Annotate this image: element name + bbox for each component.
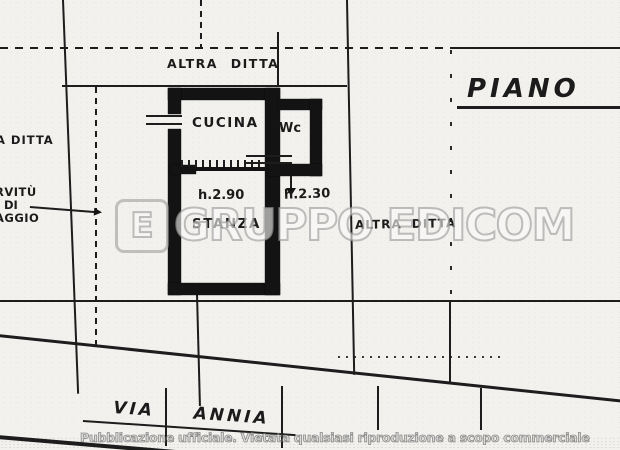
floor-title-underline bbox=[457, 106, 620, 109]
parcel-top-line bbox=[62, 85, 347, 87]
room-label-wc: Wc bbox=[279, 121, 301, 136]
easement-label-line2: DI bbox=[4, 198, 18, 212]
floor-title: PIANO T bbox=[467, 74, 620, 104]
window-mark-1 bbox=[146, 115, 182, 117]
boundary-top-right-segment bbox=[452, 47, 620, 49]
vertical-street-3 bbox=[377, 386, 379, 430]
room-label-kitchen: CUCINA bbox=[192, 115, 259, 131]
dashed-vertical-right bbox=[450, 50, 452, 302]
watermark-logo-letter: E bbox=[130, 209, 153, 243]
vertical-street-4 bbox=[480, 388, 482, 430]
easement-arrow-shaft bbox=[30, 206, 96, 213]
wall-center bbox=[265, 88, 280, 295]
road-top-edge-line bbox=[0, 334, 620, 403]
door-mark-1 bbox=[246, 155, 292, 157]
dotted-line-road-area bbox=[338, 356, 503, 358]
vertical-right-lower bbox=[449, 302, 451, 384]
cadastral-plan-scan: ALTRA DITTA PIANO T A DITTA RVITÙ DI AGG… bbox=[0, 0, 620, 450]
dashed-vertical-easement bbox=[95, 87, 97, 345]
partition-line bbox=[181, 167, 265, 171]
boundary-label-top: ALTRA DITTA bbox=[167, 56, 279, 71]
easement-label-line3: AGGIO bbox=[0, 211, 39, 225]
easement-label-line1: RVITÙ bbox=[0, 185, 37, 199]
boundary-label-left: A DITTA bbox=[0, 133, 54, 147]
section-line-lower bbox=[0, 300, 620, 302]
footer-notice: Pubblicazione ufficiale. Vietata qualsia… bbox=[80, 430, 590, 445]
parcel-left-line bbox=[62, 0, 79, 394]
dashed-vertical-top bbox=[200, 0, 202, 48]
dashed-boundary-top bbox=[0, 47, 452, 49]
door-mark-2 bbox=[246, 162, 292, 164]
wall-top bbox=[168, 88, 280, 100]
watermark-text: GRUPPO EDICOM bbox=[174, 200, 574, 251]
wall-left-upper bbox=[168, 88, 181, 114]
wall-wc-bottom bbox=[268, 164, 322, 176]
watermark-logo: E bbox=[115, 199, 169, 253]
easement-arrow-icon bbox=[94, 208, 103, 217]
vertical-below-building bbox=[196, 294, 201, 406]
window-mark-2 bbox=[146, 123, 182, 125]
parcel-right-line bbox=[346, 0, 355, 375]
wall-bottom bbox=[168, 283, 280, 295]
